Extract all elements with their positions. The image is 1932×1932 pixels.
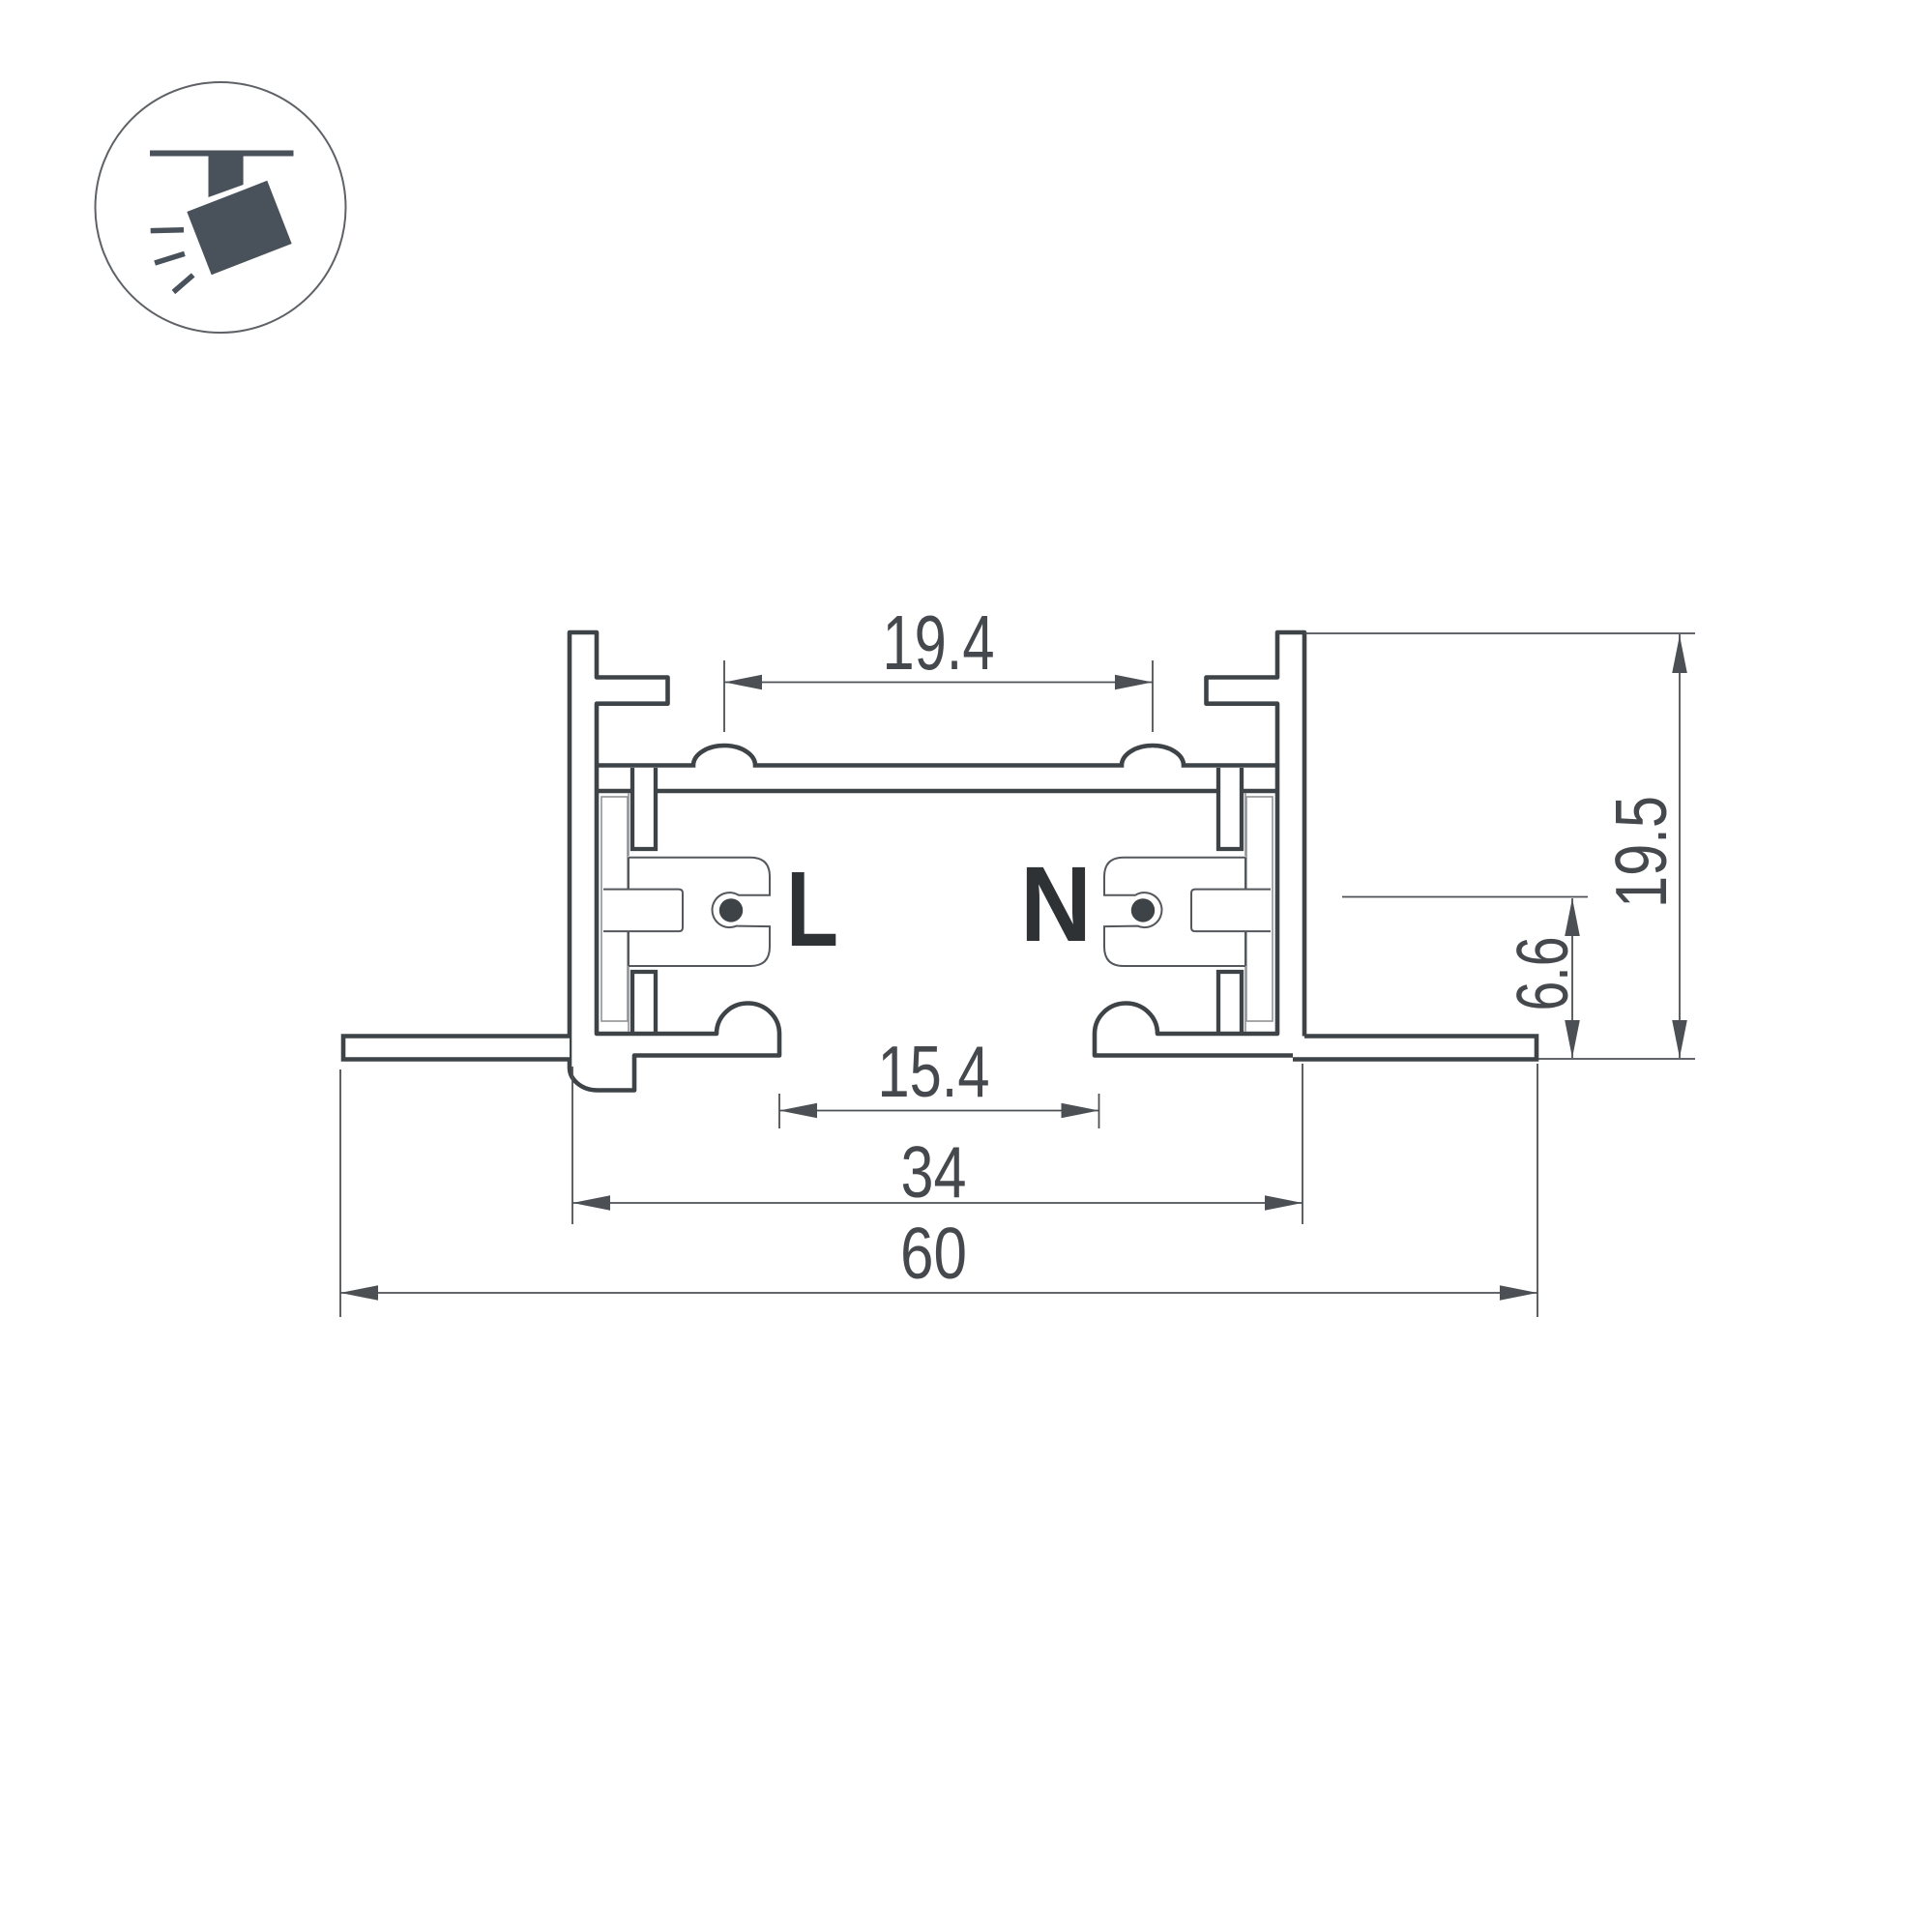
svg-text:34: 34 [901, 1131, 967, 1213]
svg-text:19.4: 19.4 [883, 600, 995, 686]
svg-text:19.5: 19.5 [1600, 796, 1682, 908]
svg-text:L: L [786, 850, 838, 969]
svg-text:15.4: 15.4 [878, 1031, 990, 1112]
svg-text:N: N [1020, 845, 1092, 964]
svg-text:6.6: 6.6 [1502, 937, 1583, 1011]
svg-text:60: 60 [900, 1213, 967, 1294]
